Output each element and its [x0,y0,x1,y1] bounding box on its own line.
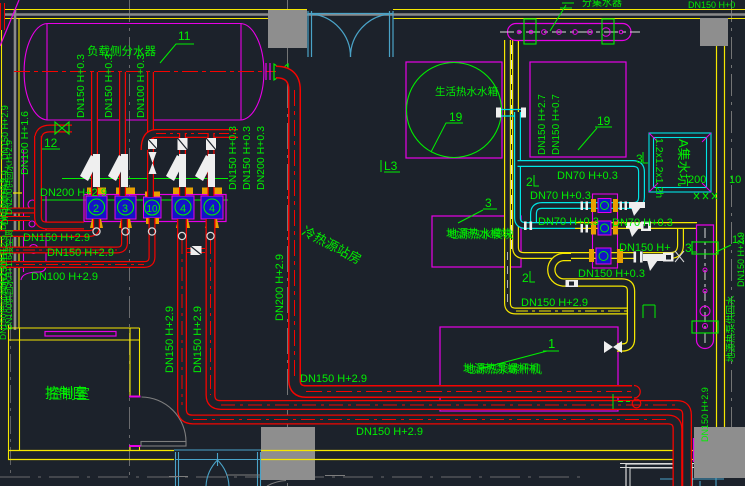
svg-text:3: 3 [685,241,692,255]
svg-text:DN100 H+2.9: DN100 H+2.9 [0,170,10,225]
svg-text:DN100 H+0.3: DN100 H+0.3 [135,54,147,118]
svg-text:10: 10 [147,204,159,215]
svg-text:DN150 H+2.9: DN150 H+2.9 [164,306,176,373]
svg-text:DN150 H+2.9: DN150 H+2.9 [736,232,745,287]
svg-text:DN150 H+2.7: DN150 H+2.7 [537,94,548,155]
svg-text:3: 3 [485,196,492,210]
svg-text:DN200 H+2.9: DN200 H+2.9 [274,254,286,321]
svg-text:DN70 H+0.3: DN70 H+0.3 [612,217,673,229]
svg-text:2: 2 [526,175,533,189]
svg-text:DN150 H+2.9: DN150 H+2.9 [0,105,10,160]
svg-text:1.2x1.2x1.2h: 1.2x1.2x1.2h [653,138,665,198]
svg-text:DN150 H+: DN150 H+ [619,242,671,254]
svg-text:3: 3 [636,152,643,166]
svg-text:2: 2 [93,203,99,215]
svg-text:1: 1 [548,336,555,351]
svg-text:12: 12 [44,136,58,150]
svg-text:L3: L3 [384,159,398,173]
svg-text:地源热泵供回水: 地源热泵供回水 [725,295,737,362]
svg-text:19: 19 [597,114,611,128]
svg-text:DN100 H+2.9: DN100 H+2.9 [31,271,98,283]
svg-text:19: 19 [449,110,463,124]
svg-text:DN150 H+2.9: DN150 H+2.9 [23,232,90,244]
svg-text:DN70 H+0.3: DN70 H+0.3 [538,216,599,228]
svg-text:3: 3 [122,203,128,215]
svg-text:A集水坑: A集水坑 [676,139,691,187]
svg-text:DN150 H+0.7: DN150 H+0.7 [551,94,562,155]
svg-text:DN150 H+0: DN150 H+0 [688,0,735,10]
svg-text:2: 2 [522,271,529,285]
svg-text:DN70 H+0.3: DN70 H+0.3 [557,170,618,182]
svg-text:11: 11 [178,29,191,43]
svg-text:4: 4 [180,203,186,215]
svg-text:DN150 H+0.3: DN150 H+0.3 [103,54,115,118]
svg-text:地源热泵螺杆机: 地源热泵螺杆机 [465,362,542,376]
svg-text:DN150 H+0.3: DN150 H+0.3 [75,54,87,118]
svg-text:DN150 H+2.9: DN150 H+2.9 [521,297,588,309]
svg-text:生活热水水箱: 生活热水水箱 [435,85,498,98]
svg-text:控制室: 控制室 [48,386,90,402]
svg-text:DN150 H+0.3: DN150 H+0.3 [578,268,645,280]
svg-text:DN150 H+2.9: DN150 H+2.9 [700,387,710,442]
svg-text:DN150 H+2.9: DN150 H+2.9 [0,235,9,290]
svg-text:4: 4 [209,203,215,215]
svg-text:DN150 H+2.9: DN150 H+2.9 [47,247,114,259]
svg-text:DN150 H+0.3: DN150 H+0.3 [241,126,253,190]
svg-text:DN150 H+0.3: DN150 H+0.3 [227,126,239,190]
svg-text:分集水器: 分集水器 [582,0,622,9]
svg-text:DN150 H+2.9: DN150 H+2.9 [300,373,367,385]
svg-text:DN150 H+2.9: DN150 H+2.9 [356,426,423,438]
svg-text:DN200 H+0.3: DN200 H+0.3 [255,126,267,190]
svg-text:DN100 H+1.6: DN100 H+1.6 [19,111,31,175]
svg-text:10: 10 [729,174,741,186]
svg-text:DN200 H+2.9: DN200 H+2.9 [40,187,107,199]
svg-text:DN70 H+0.3: DN70 H+0.3 [530,190,591,202]
svg-text:DN150 H+2.9: DN150 H+2.9 [192,306,204,373]
svg-text:地源热水模块: 地源热水模块 [448,227,514,241]
